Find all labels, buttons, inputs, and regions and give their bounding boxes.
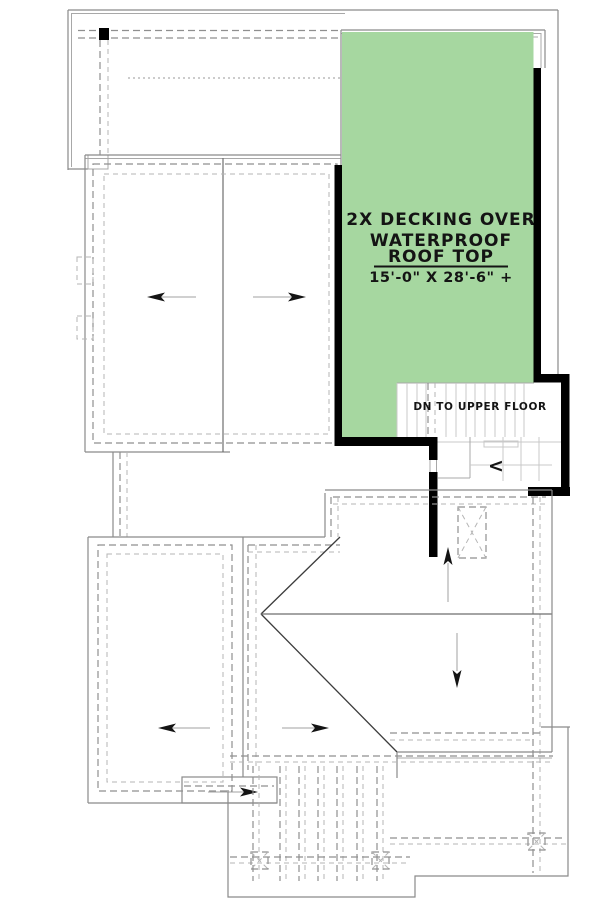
upper-roof-hidden-lines <box>78 28 341 155</box>
deck-label-line3: ROOF TOP <box>388 247 494 267</box>
deck-dimension-label: 15'-0" X 28'-6" + <box>369 270 513 286</box>
chimney-chase <box>458 507 486 558</box>
roof-deck-plan-drawing: 2X DECKING OVER WATERPROOF ROOF TOP 15'-… <box>0 0 600 903</box>
middle-roof-block <box>77 155 337 537</box>
wall-jog <box>534 374 570 383</box>
wall-stair-right <box>561 382 570 488</box>
wall-stub-upper <box>429 446 438 460</box>
deck-post <box>528 833 545 850</box>
deck-label-line1: 2X DECKING OVER <box>346 210 536 230</box>
deck-area-group: 2X DECKING OVER WATERPROOF ROOF TOP 15'-… <box>342 32 536 437</box>
deck-framing <box>228 727 570 897</box>
wall-stub-lower <box>429 472 438 557</box>
structural-post-marker <box>99 28 109 40</box>
stair-direction-label: DN TO UPPER FLOOR <box>413 401 546 413</box>
wall-stair-bottom <box>528 487 570 496</box>
roof-hip-line <box>261 614 397 752</box>
slope-arrow-up-icon <box>444 547 453 565</box>
roof-valley-line <box>261 537 340 614</box>
wall-bottom <box>335 437 438 446</box>
lower-roof-blocks <box>88 490 552 873</box>
floor-plan-sheet: 2X DECKING OVER WATERPROOF ROOF TOP 15'-… <box>0 0 600 903</box>
deck-post <box>372 852 389 869</box>
wall-left <box>335 165 343 446</box>
stair-turn-chevron-icon: < <box>488 455 504 477</box>
wall-right <box>534 68 542 375</box>
entry-roof-protrusion <box>182 777 277 803</box>
stairwell: DN TO UPPER FLOOR < <box>397 383 562 481</box>
roof-notch <box>88 155 108 169</box>
slope-arrow-down-icon <box>453 670 462 688</box>
